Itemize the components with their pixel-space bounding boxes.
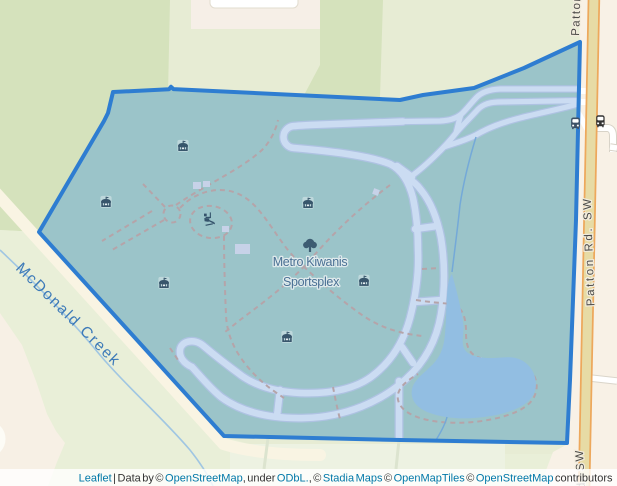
- svg-text:Patton: Patton: [570, 0, 583, 36]
- svg-text:Leaflet | Data by © OpenStreet: Leaflet | Data by © OpenStreetMap, under…: [79, 473, 613, 485]
- svg-text:Metro Kiwanis: Metro Kiwanis: [273, 255, 348, 269]
- svg-text:Sportsplex: Sportsplex: [283, 275, 340, 289]
